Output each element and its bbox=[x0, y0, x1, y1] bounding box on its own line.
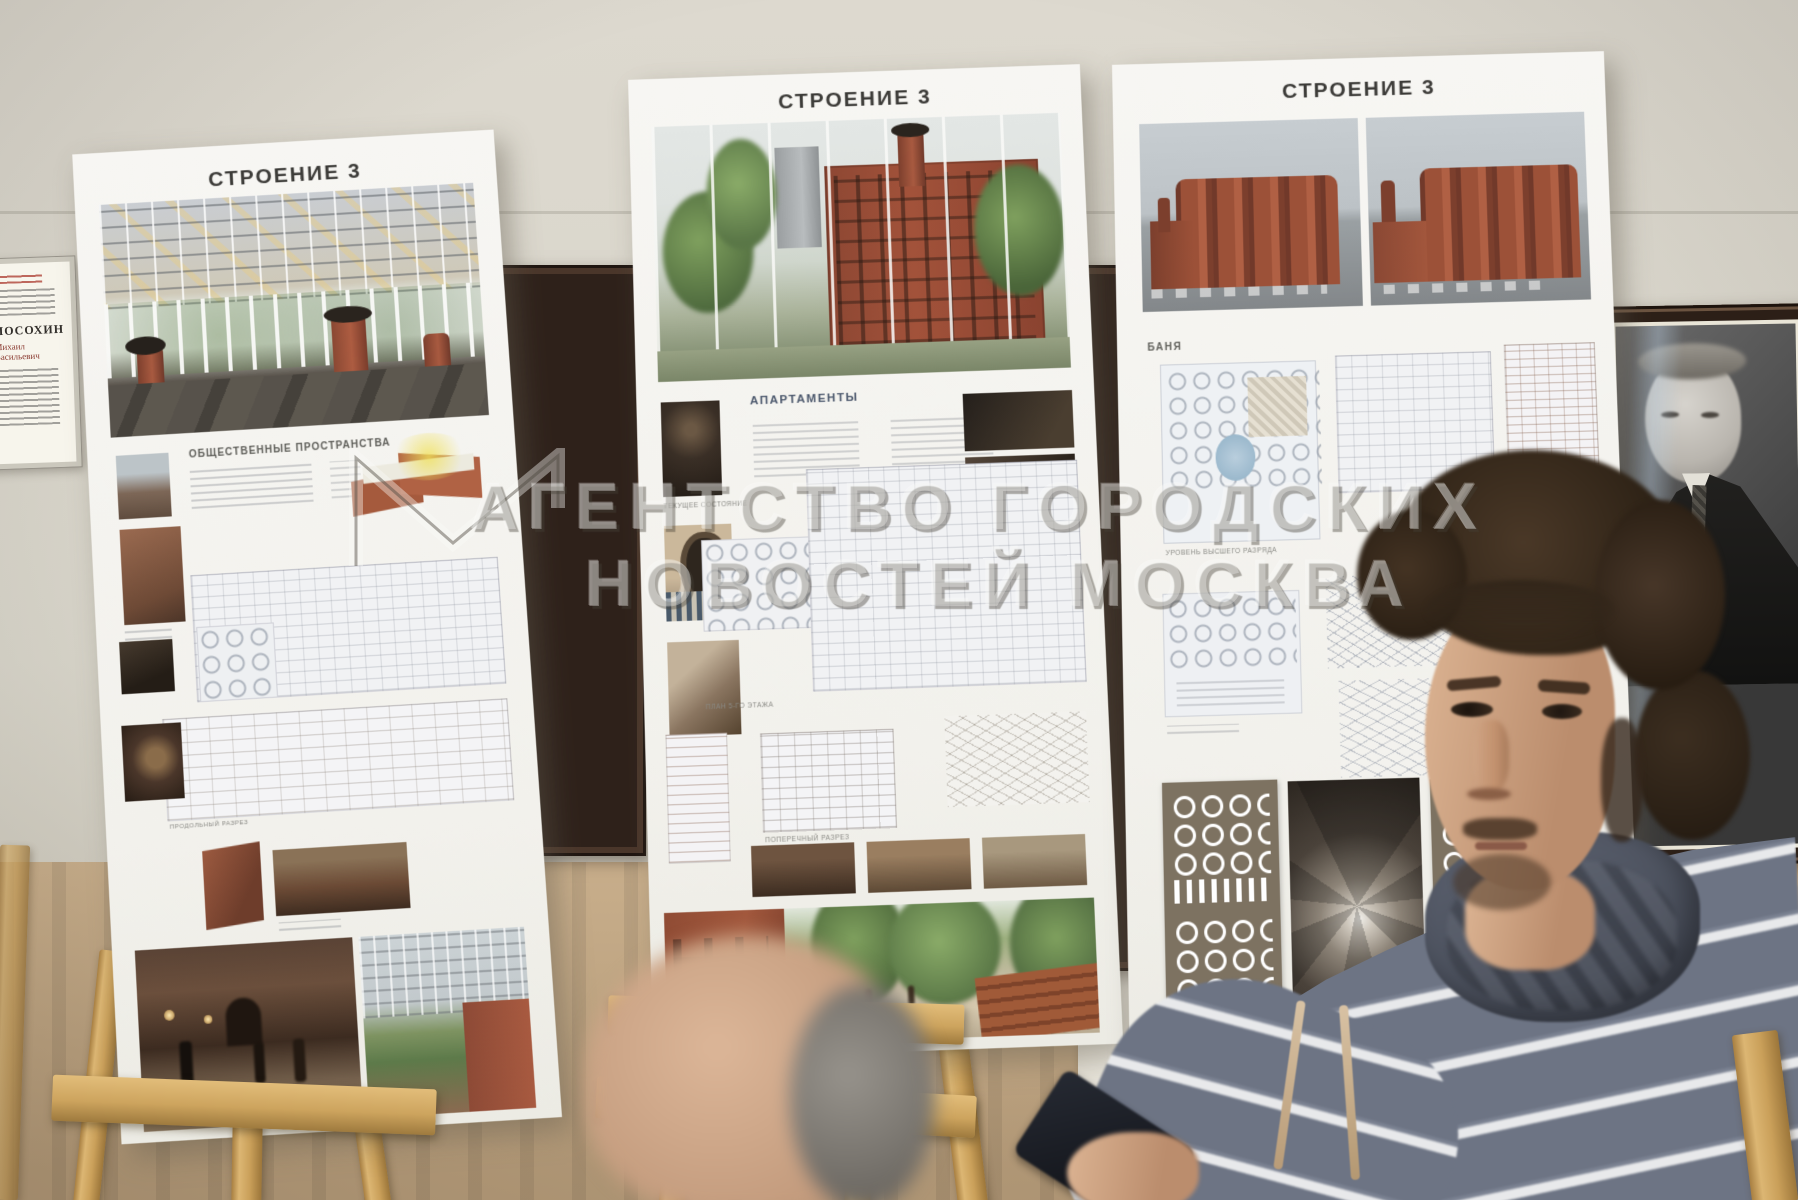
right-photo-silos-1 bbox=[1139, 118, 1363, 312]
left-photo-interior-dark bbox=[119, 639, 175, 694]
foreground-blurred-head bbox=[585, 935, 915, 1200]
left-legend-text bbox=[190, 461, 314, 509]
right-section-heading: БАНЯ bbox=[1147, 342, 1182, 354]
arcade-arch bbox=[225, 997, 263, 1047]
middle-caption-plan: ПЛАН 5-ГО ЭТАЖА bbox=[706, 702, 774, 712]
middle-render-hall3 bbox=[982, 834, 1087, 889]
man-hair-fringe bbox=[1425, 580, 1615, 640]
silo-base-building bbox=[1150, 220, 1195, 289]
left-small-axon-tower bbox=[202, 841, 264, 930]
arcade-lamp bbox=[164, 1010, 175, 1021]
right-photo-silos-2 bbox=[1366, 112, 1591, 306]
board-left: СТРОЕНИЕ 3 ОБЩЕСТВЕННЫЕ ПРОСТРАНСТВА bbox=[72, 130, 562, 1145]
document-red-text-lines bbox=[0, 273, 43, 285]
exhibition-photo: ПОСОХИН Михаил Васильевич СТРОЕНИЕ 3 bbox=[0, 0, 1798, 1200]
board-right-title: СТРОЕНИЕ 3 bbox=[1112, 71, 1605, 109]
silo-base-building bbox=[1373, 221, 1427, 283]
left-photo-tower bbox=[116, 453, 172, 520]
silo-chimney bbox=[1381, 181, 1396, 226]
document-title: ПОСОХИН bbox=[0, 322, 64, 339]
middle-section-heading: АПАРТАМЕНТЫ bbox=[750, 391, 859, 407]
silo-cylinders bbox=[1420, 164, 1582, 281]
man-hair-right bbox=[1595, 500, 1725, 690]
middle-photo-corridor bbox=[661, 400, 723, 497]
middle-axon-drawing bbox=[944, 711, 1089, 807]
man-mouth bbox=[1475, 842, 1527, 850]
middle-photo-dark1 bbox=[963, 390, 1075, 451]
middle-hero-rendering bbox=[651, 113, 1071, 382]
middle-caption-current-state: ТЕКУЩЕЕ СОСТОЯНИЕ bbox=[663, 500, 747, 510]
wall-document-frame: ПОСОХИН Михаил Васильевич bbox=[0, 256, 82, 469]
man-nose bbox=[1473, 720, 1509, 792]
middle-render-hall2 bbox=[866, 838, 971, 893]
board-middle: СТРОЕНИЕ 3 АПАРТАМЕНТЫ ТЕКУЩЕЕ СОСТОЯНИЕ bbox=[628, 64, 1123, 1060]
arcade-lamp bbox=[204, 1015, 213, 1024]
document-subtitle: Михаил Васильевич bbox=[0, 340, 65, 362]
man-eye-right bbox=[1542, 704, 1582, 719]
photo-caption-bar bbox=[279, 919, 342, 931]
silo-chimney bbox=[1158, 198, 1171, 233]
easel-left-strut bbox=[231, 1120, 262, 1200]
man-nostril-shadow bbox=[1467, 788, 1511, 800]
document-text-lines-top bbox=[0, 288, 55, 316]
man-hair-side bbox=[1635, 670, 1750, 840]
man-mustache bbox=[1463, 818, 1537, 840]
gray-hair-patch bbox=[790, 985, 935, 1200]
middle-cross-section bbox=[760, 729, 897, 833]
man-eye-left bbox=[1451, 702, 1493, 717]
middle-tall-section bbox=[665, 733, 730, 864]
left-plan-circle-cluster bbox=[196, 622, 278, 702]
parking-cars bbox=[1384, 280, 1543, 294]
courtyard-brick bbox=[462, 999, 536, 1112]
man-chin-beard bbox=[1453, 854, 1551, 910]
middle-plan-circle-cluster bbox=[701, 536, 814, 631]
document-text-lines-bottom bbox=[0, 366, 60, 426]
left-axon-diagram bbox=[340, 421, 499, 533]
bath-hatch-block bbox=[1247, 376, 1307, 438]
left-photo-gallery bbox=[272, 842, 410, 916]
left-hero-rendering bbox=[99, 183, 489, 438]
man-sideburn bbox=[1601, 718, 1643, 842]
man bbox=[1095, 440, 1798, 1200]
man-hand bbox=[1067, 1132, 1199, 1200]
left-section-caption: ПРОДОЛЬНЫЙ РАЗРЕЗ bbox=[170, 820, 249, 831]
left-photo-building bbox=[120, 526, 186, 625]
left-long-section-drawing bbox=[162, 698, 514, 821]
left-photo-tunnel bbox=[121, 722, 185, 801]
middle-render-hall1 bbox=[751, 842, 856, 897]
arcade-person bbox=[293, 1038, 307, 1082]
silo-cylinders bbox=[1175, 175, 1340, 289]
arcade-person bbox=[253, 1042, 266, 1084]
middle-photo-attic bbox=[667, 640, 741, 737]
middle-floor-plan bbox=[806, 460, 1087, 692]
